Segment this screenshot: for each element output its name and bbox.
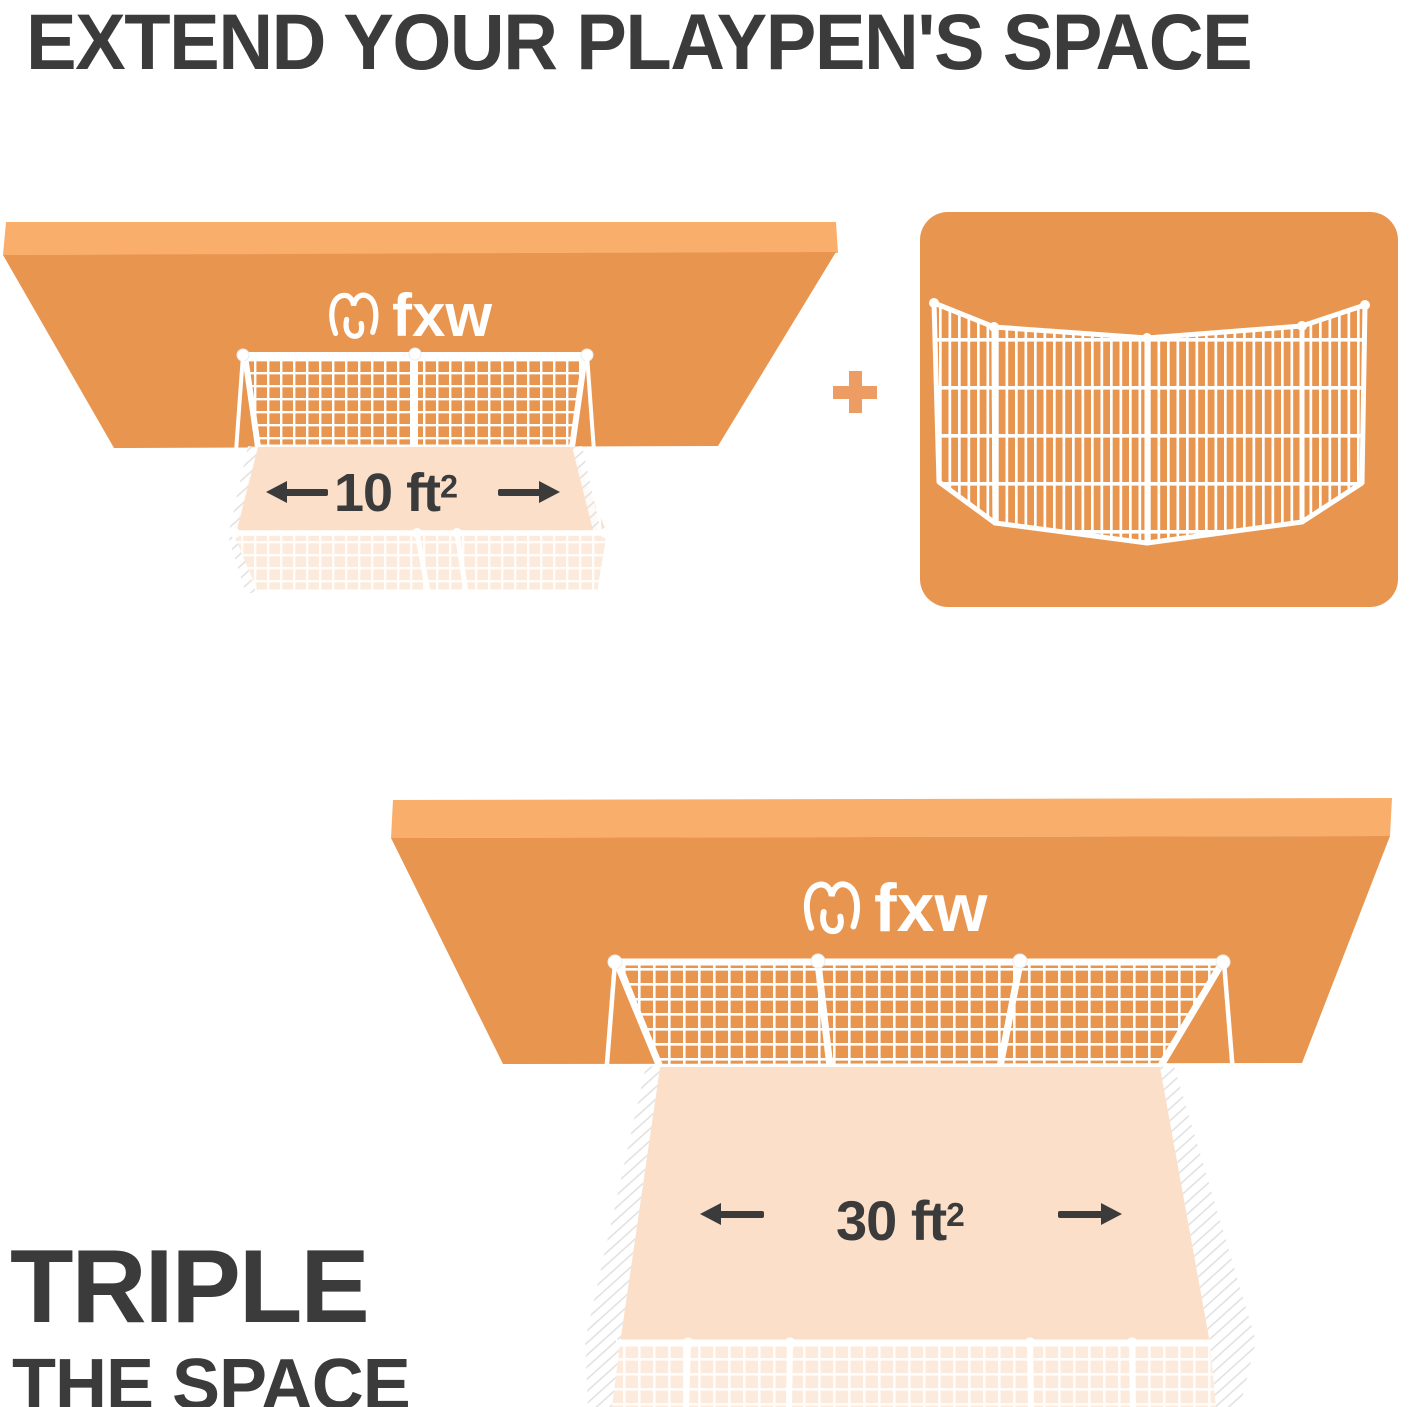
infographic-canvas: EXTEND YOUR PLAYPEN'S SPACE fxw [0, 0, 1420, 1407]
plus-horizontal-bar [833, 386, 877, 399]
large-area-sup: 2 [946, 1197, 964, 1234]
small-area-label: 10 ft2 [334, 462, 457, 524]
brand-logo-small: fxw [324, 286, 492, 346]
arrow-left-icon [700, 1203, 764, 1225]
extension-panels-card [920, 212, 1398, 607]
arrow-head [1101, 1203, 1122, 1225]
large-area-label: 30 ft2 [836, 1188, 964, 1253]
arrow-left-icon [266, 481, 328, 503]
small-area-value: 10 ft [334, 463, 440, 523]
arrow-shaft [715, 1211, 764, 1218]
brand-name: fxw [874, 874, 987, 942]
arrow-shaft [498, 489, 545, 496]
fxw-dog-logo-icon [798, 874, 864, 942]
headline: EXTEND YOUR PLAYPEN'S SPACE [26, 0, 1251, 88]
footer-subtitle: THE SPACE [12, 1344, 410, 1407]
arrow-shaft [281, 489, 328, 496]
brand-name: fxw [392, 286, 492, 346]
large-area-value: 30 ft [836, 1189, 946, 1252]
fence-panels-icon [920, 290, 1398, 560]
arrow-shaft [1058, 1211, 1107, 1218]
arrow-right-icon [498, 481, 560, 503]
brand-logo-large: fxw [798, 874, 987, 942]
plus-icon [833, 371, 877, 413]
arrow-head [539, 481, 560, 503]
small-area-sup: 2 [440, 468, 457, 504]
arrow-right-icon [1058, 1203, 1122, 1225]
large-playpen-illustration [548, 953, 1318, 1407]
footer-title: TRIPLE [10, 1228, 368, 1347]
fxw-dog-logo-icon [324, 286, 382, 346]
